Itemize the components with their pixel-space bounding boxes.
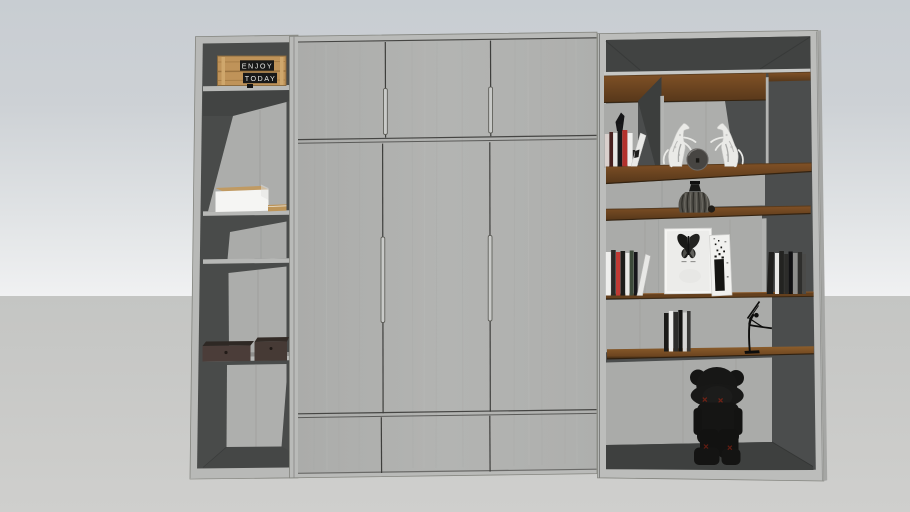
svg-text:TODAY: TODAY [245,74,277,83]
svg-text:ENJOY: ENJOY [242,61,273,70]
